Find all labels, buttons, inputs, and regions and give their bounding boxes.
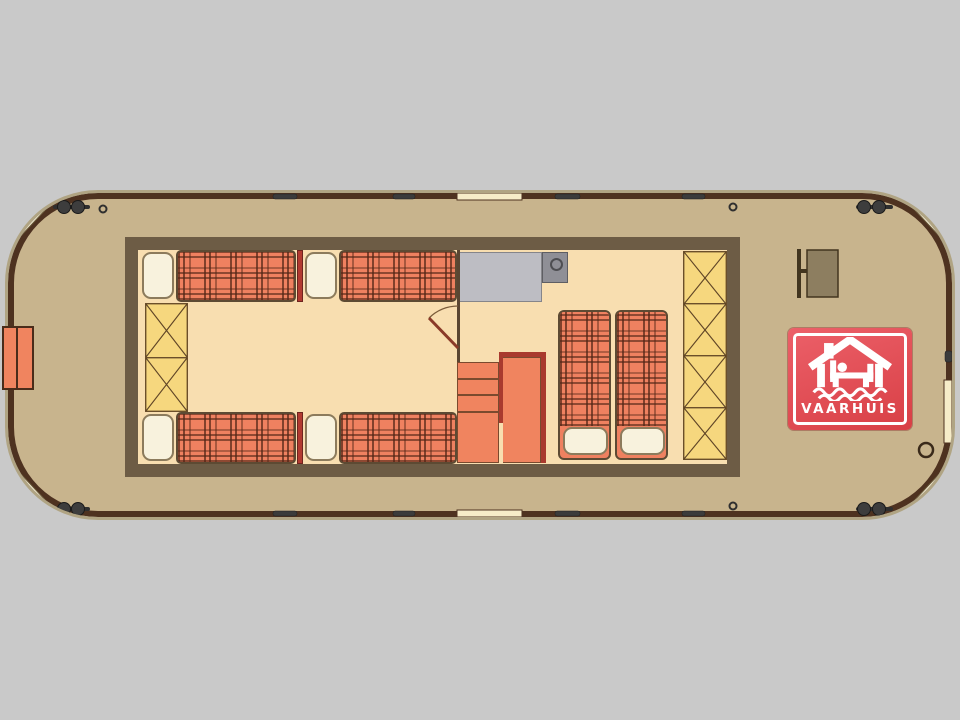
- hull-window-mark: [555, 194, 580, 199]
- cabin: [125, 237, 740, 477]
- stair-flight-lower: [457, 362, 499, 463]
- berth-divider: [297, 412, 303, 464]
- berth-bottom-left: [176, 412, 296, 464]
- corner-seat-top-right: [912, 197, 947, 238]
- hull-window-mark: [555, 511, 580, 516]
- fairlead-icon: [730, 503, 737, 510]
- cleat-pair-bottom-right: [856, 503, 893, 516]
- double-berth: [558, 310, 668, 460]
- cleat-pair-top-right: [856, 201, 893, 214]
- pillow: [142, 252, 174, 299]
- mooring-ring-icon: [919, 443, 933, 457]
- cleat-pair-top-left: [53, 201, 90, 214]
- berth-divider: [297, 250, 303, 302]
- cleat-pair-bottom-left: [53, 503, 90, 516]
- hull-window-mark: [682, 511, 705, 516]
- helm-console: [797, 249, 838, 298]
- hob-burner-icon: [550, 258, 563, 271]
- kitchen-counter: [458, 252, 542, 302]
- hull-window-mark: [273, 511, 297, 516]
- corner-seat-top-left: [13, 197, 48, 238]
- boarding-gate-side: [944, 380, 952, 443]
- boarding-gate-top: [457, 193, 522, 200]
- kitchen-appliance: [542, 252, 568, 283]
- pillow: [142, 414, 174, 461]
- logo-label: VAARHUIS: [788, 401, 912, 417]
- berth-top-right: [339, 250, 457, 302]
- fairlead-icon: [100, 206, 107, 213]
- hull-window-mark: [945, 351, 952, 362]
- pillow: [620, 427, 665, 455]
- stair-rail-middle: [499, 352, 503, 423]
- deck-plan: VAARHUIS: [0, 0, 960, 720]
- pillow: [305, 252, 337, 299]
- hull-window-mark: [393, 511, 415, 516]
- pillow: [563, 427, 608, 455]
- fairlead-icon: [730, 204, 737, 211]
- double-berth-left-half: [558, 310, 611, 460]
- boarding-gate-bottom: [457, 510, 522, 517]
- double-berth-right-half: [615, 310, 668, 460]
- hull-window-mark: [273, 194, 297, 199]
- hull-window-mark: [682, 194, 705, 199]
- bow-step: [2, 326, 34, 390]
- berth-top-left: [176, 250, 296, 302]
- houseboat-bed-waves-icon: [806, 337, 894, 401]
- corner-seat-bottom-left: [13, 472, 48, 513]
- berth-bottom-right: [339, 412, 457, 464]
- stair-rail-top: [499, 352, 546, 357]
- corner-seat-bottom-right: [912, 472, 947, 513]
- pillow: [305, 414, 337, 461]
- stair-rail-right: [541, 352, 546, 463]
- vaarhuis-logo: VAARHUIS: [788, 328, 912, 430]
- stair-flight-upper: [503, 357, 541, 463]
- hull-window-mark: [393, 194, 415, 199]
